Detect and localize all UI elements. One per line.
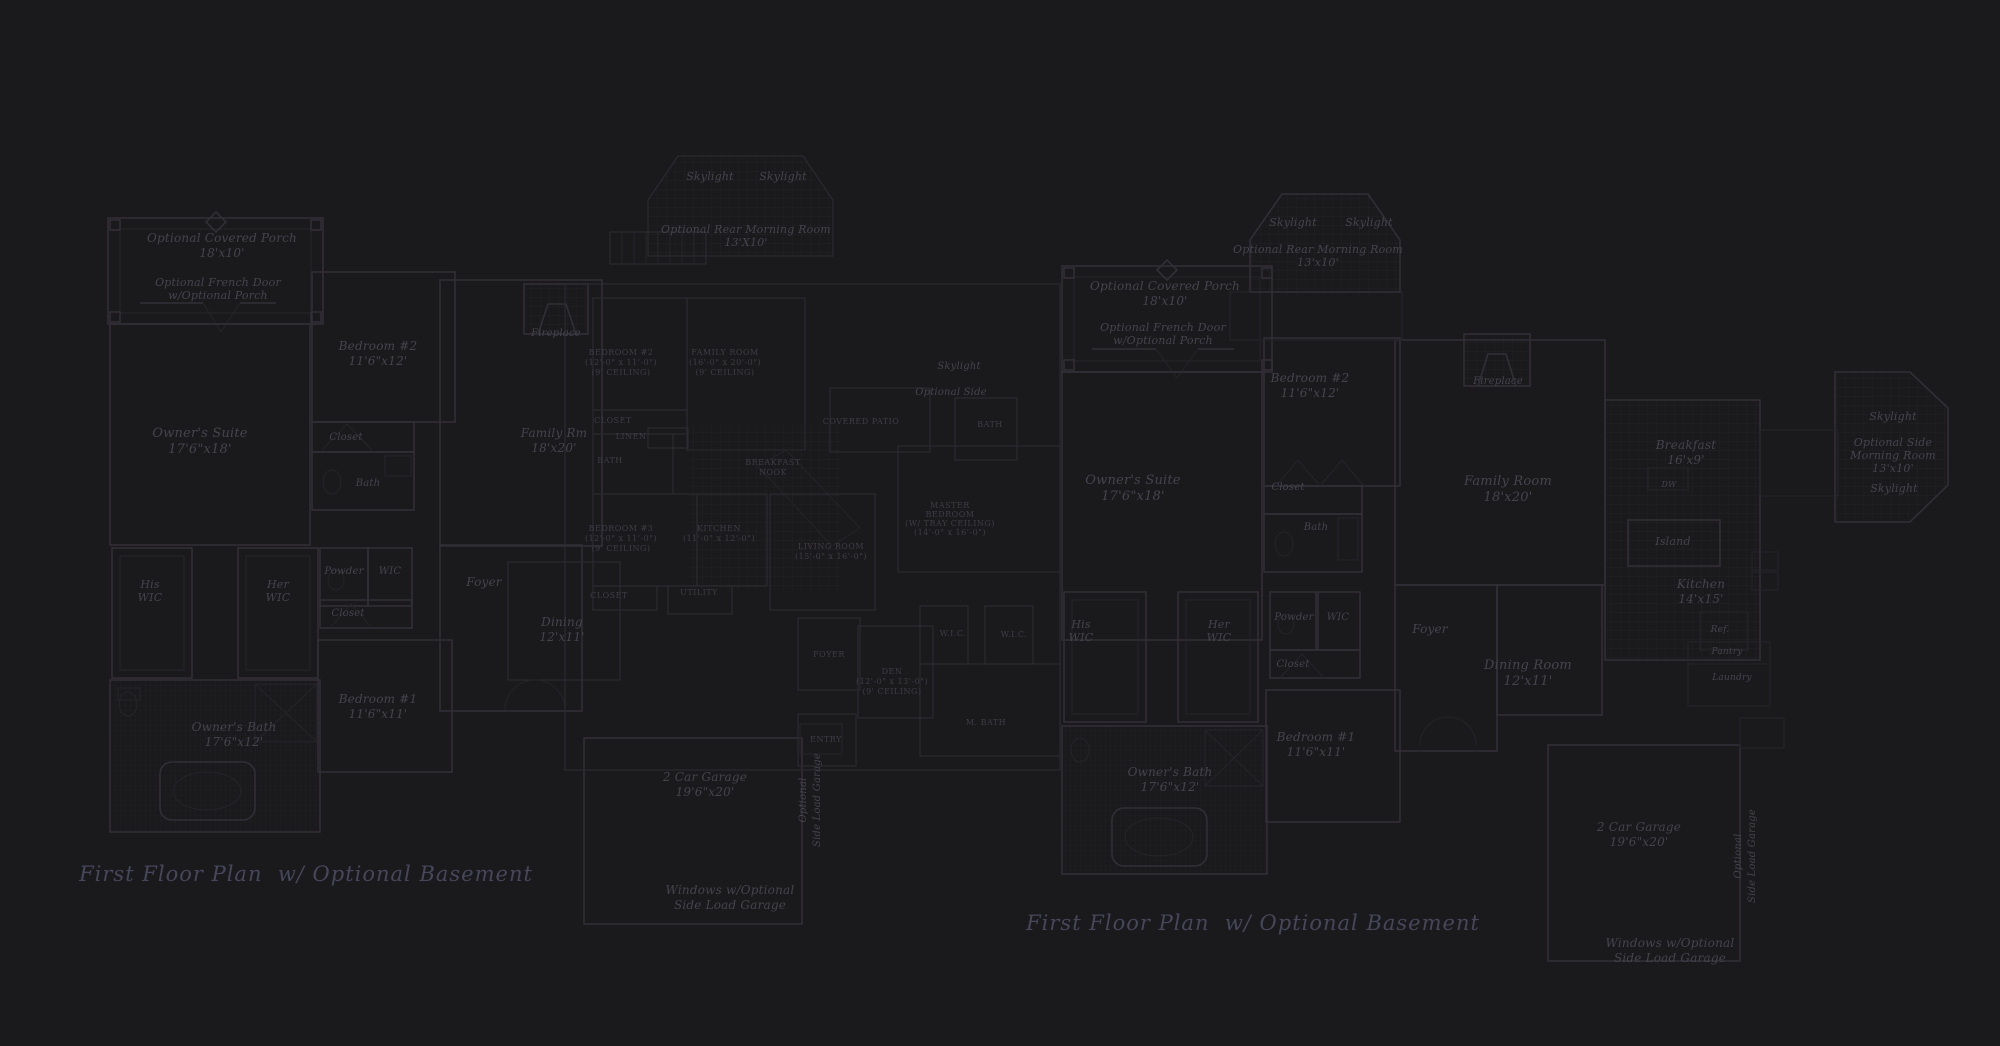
- room-label: Side Load Garage: [812, 753, 823, 847]
- plan-path: [1156, 349, 1198, 378]
- room-label: HisWIC: [1069, 618, 1094, 644]
- room-label: Island: [1654, 535, 1690, 548]
- room-label: Skylight: [759, 170, 807, 183]
- plan-rect: [690, 424, 840, 590]
- plan-rect: [238, 548, 318, 678]
- plan-ellipse: [1275, 532, 1293, 556]
- room-label: Family Room18'x20': [1463, 474, 1552, 505]
- room-label: BEDROOM #2(12'-0" x 11'-0")(9' CEILING): [585, 348, 657, 377]
- plan-rect: [1548, 745, 1740, 961]
- room-label: Closet: [1276, 659, 1310, 670]
- room-label: 2 Car Garage19'6"x20': [1596, 820, 1681, 849]
- room-label: Kitchen14'x15': [1676, 577, 1725, 606]
- room-label: HerWIC: [266, 578, 291, 604]
- floor-plan-canvas: Optional Covered Porch18'x10'Optional Fr…: [0, 0, 2000, 1046]
- plan-rect: [110, 220, 120, 230]
- plan-rect: [898, 446, 1060, 572]
- room-label: DEN(12'-0" x 13'-0")(9' CEILING): [856, 667, 928, 696]
- plan-rect: [955, 398, 1017, 460]
- plan-path: [1420, 717, 1448, 745]
- plan-rect: [1688, 664, 1770, 706]
- room-label: WIC: [1327, 612, 1350, 623]
- room-label: M. BATH: [966, 718, 1006, 727]
- room-label: Fireplace: [1472, 376, 1523, 387]
- room-label: Skylight: [937, 361, 981, 372]
- plan-rect: [1064, 360, 1074, 370]
- room-label: FOYER: [813, 650, 845, 659]
- room-label: Skylight: [1345, 216, 1393, 229]
- room-label: Side Load Garage: [1747, 809, 1758, 903]
- room-label: UTILITY: [680, 588, 718, 597]
- room-label: LIVING ROOM(15'-0" x 16'-0"): [795, 542, 867, 561]
- plan-title-left: First Floor Plan w/ Optional Basement: [79, 862, 533, 886]
- plan-rect: [920, 664, 1060, 756]
- room-label: Foyer: [465, 575, 503, 589]
- room-label: FAMILY ROOM(16'-0" x 20'-0")(9' CEILING): [689, 348, 761, 377]
- room-label: HerWIC: [1207, 618, 1232, 644]
- room-label: Powder: [1273, 612, 1314, 623]
- room-label: Closet: [329, 432, 363, 443]
- room-label: 2 Car Garage19'6"x20': [662, 770, 747, 799]
- room-label: MASTERBEDROOM(W/ TRAY CEILING)(14'-0" x …: [905, 501, 995, 537]
- room-label: CLOSET: [594, 416, 632, 425]
- room-label: Bedroom #211'6"x12': [1270, 371, 1350, 400]
- plan-path: [203, 303, 240, 332]
- room-label: Closet: [1271, 482, 1305, 493]
- room-label: W.I.C.: [1001, 630, 1027, 639]
- plan-rect: [1064, 268, 1074, 278]
- room-label: Dining12'x11': [539, 615, 584, 644]
- room-label: Skylight: [1269, 216, 1317, 229]
- room-label: Powder: [323, 566, 364, 577]
- room-label: Skylight: [686, 170, 734, 183]
- room-label: Ref.: [1710, 625, 1730, 635]
- room-label: BEDROOM #3(12'-0" x 11'-0")(9' CEILING): [585, 524, 657, 553]
- room-label: ENTRY: [810, 735, 842, 744]
- plan-rect: [648, 428, 688, 448]
- plan-path: [1448, 717, 1476, 745]
- room-label: HisWIC: [138, 578, 163, 604]
- room-label: Optional: [1733, 833, 1744, 878]
- plan-rect: [524, 284, 588, 334]
- room-label: Bedroom #111'6"x11': [1276, 730, 1356, 759]
- plan-rect: [120, 556, 184, 670]
- room-label: Owner's Suite17'6"x18': [152, 426, 248, 457]
- room-label: Windows w/OptionalSide Load Garage: [666, 883, 795, 912]
- room-label: COVERED PATIO: [823, 417, 900, 426]
- room-label: Optional Covered Porch18'x10': [1090, 279, 1240, 308]
- room-label: Windows w/OptionalSide Load Garage: [1606, 936, 1735, 965]
- plan-rect: [1178, 592, 1258, 722]
- room-label: W.I.C.: [940, 629, 966, 638]
- room-label: Closet: [331, 608, 365, 619]
- room-label: Skylight: [1870, 482, 1918, 495]
- room-label: DW: [1660, 480, 1677, 489]
- plan-rect: [318, 640, 452, 772]
- plan-rect: [368, 548, 412, 606]
- room-label: WIC: [379, 566, 402, 577]
- plan-rect: [1395, 585, 1497, 751]
- room-label: Skylight: [1869, 410, 1917, 423]
- room-label: Optional Side: [915, 387, 987, 398]
- plan-rect: [1497, 585, 1602, 715]
- plan-rect: [1338, 518, 1358, 560]
- room-label: Optional: [798, 777, 809, 822]
- room-label: Optional French Doorw/Optional Porch: [155, 276, 281, 302]
- room-label: Bath: [1303, 522, 1329, 533]
- plan-rect: [1230, 292, 1402, 340]
- room-label: BATH: [597, 456, 623, 465]
- plan-rect: [1064, 592, 1146, 722]
- room-label: Bedroom #111'6"x11': [338, 692, 418, 721]
- plan-rect: [312, 422, 414, 452]
- room-label: Bath: [355, 478, 381, 489]
- plan-rect: [246, 556, 310, 670]
- room-label: Optional French Doorw/Optional Porch: [1100, 321, 1226, 347]
- plan-rect: [110, 312, 120, 322]
- plan-rect: [1264, 338, 1400, 486]
- plan-title-right: First Floor Plan w/ Optional Basement: [1026, 911, 1480, 935]
- room-label: Foyer: [1411, 622, 1449, 636]
- room-label: CLOSET: [590, 591, 628, 600]
- room-label: BATH: [977, 420, 1003, 429]
- room-label: Pantry: [1710, 647, 1743, 657]
- room-label: Laundry: [1711, 673, 1752, 683]
- plan-rect: [1062, 726, 1267, 874]
- room-label: LINEN: [616, 432, 647, 441]
- plan-rect: [112, 548, 192, 678]
- plan-path: [505, 680, 535, 710]
- room-label: Family Rm18'x20': [520, 426, 588, 455]
- plan-rect: [311, 220, 321, 230]
- floor-plan-document: Optional Covered Porch18'x10'Optional Fr…: [0, 0, 2000, 1046]
- plan-rect: [1760, 430, 1838, 496]
- room-label: Owner's Suite17'6"x18': [1085, 473, 1181, 504]
- plan-ellipse: [323, 470, 341, 494]
- plan-rect: [1740, 718, 1784, 748]
- plan-path: [1320, 460, 1364, 486]
- room-label: Bedroom #211'6"x12': [338, 339, 418, 368]
- room-label: Fireplace: [530, 328, 581, 339]
- room-label: Optional Covered Porch18'x10': [147, 231, 297, 260]
- plan-rect: [385, 456, 411, 476]
- plan-path: [535, 680, 565, 710]
